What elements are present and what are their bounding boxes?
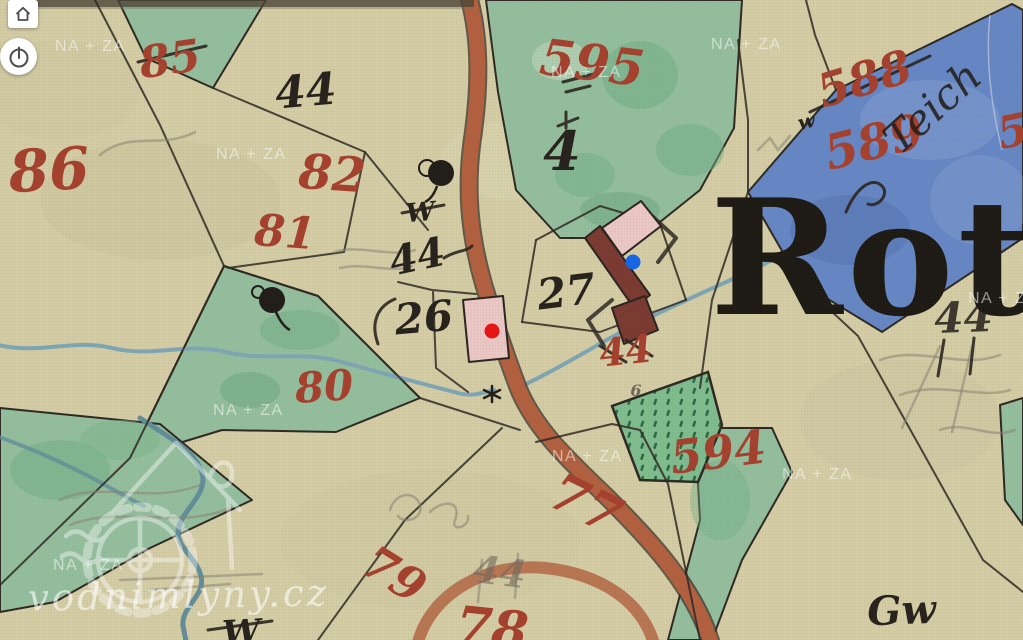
parcel-number-26: 26 — [391, 291, 454, 345]
sheet-edge-shadow — [28, 7, 474, 9]
home-icon — [14, 5, 32, 23]
selected-mill-marker[interactable] — [485, 324, 500, 339]
note-w-mid: W — [404, 197, 438, 230]
map-viewport[interactable]: 86 85 82 81 80 595 588 589 5 594 44 77 7… — [0, 0, 1023, 640]
parcel-number-81: 81 — [252, 205, 318, 260]
clock-icon — [7, 45, 31, 69]
pencil-number-44: 44 — [471, 546, 529, 597]
parcel-number-82: 82 — [296, 144, 368, 205]
parcel-number-86: 86 — [6, 134, 91, 206]
parcel-number-44-top: 44 — [273, 63, 338, 119]
mill-marker[interactable] — [626, 255, 641, 270]
parcel-number-85: 85 — [135, 30, 204, 89]
cadastral-map: 86 85 82 81 80 595 588 589 5 594 44 77 7… — [0, 0, 1023, 640]
parcel-number-78: 78 — [453, 594, 531, 640]
time-button[interactable] — [0, 38, 37, 75]
parcel-number-595: 595 — [537, 27, 648, 98]
place-name-label: Roth — [710, 164, 1023, 352]
note-w-bottom: W — [221, 612, 264, 640]
parcel-number-27: 27 — [533, 264, 598, 320]
parcel-number-4: 4 — [543, 119, 581, 183]
note-6: 6 — [630, 381, 641, 400]
parcel-number-44-red: 44 — [597, 325, 654, 375]
note-gw: Gw — [866, 586, 938, 635]
home-button[interactable] — [8, 0, 38, 28]
parcel-number-80: 80 — [292, 360, 355, 413]
